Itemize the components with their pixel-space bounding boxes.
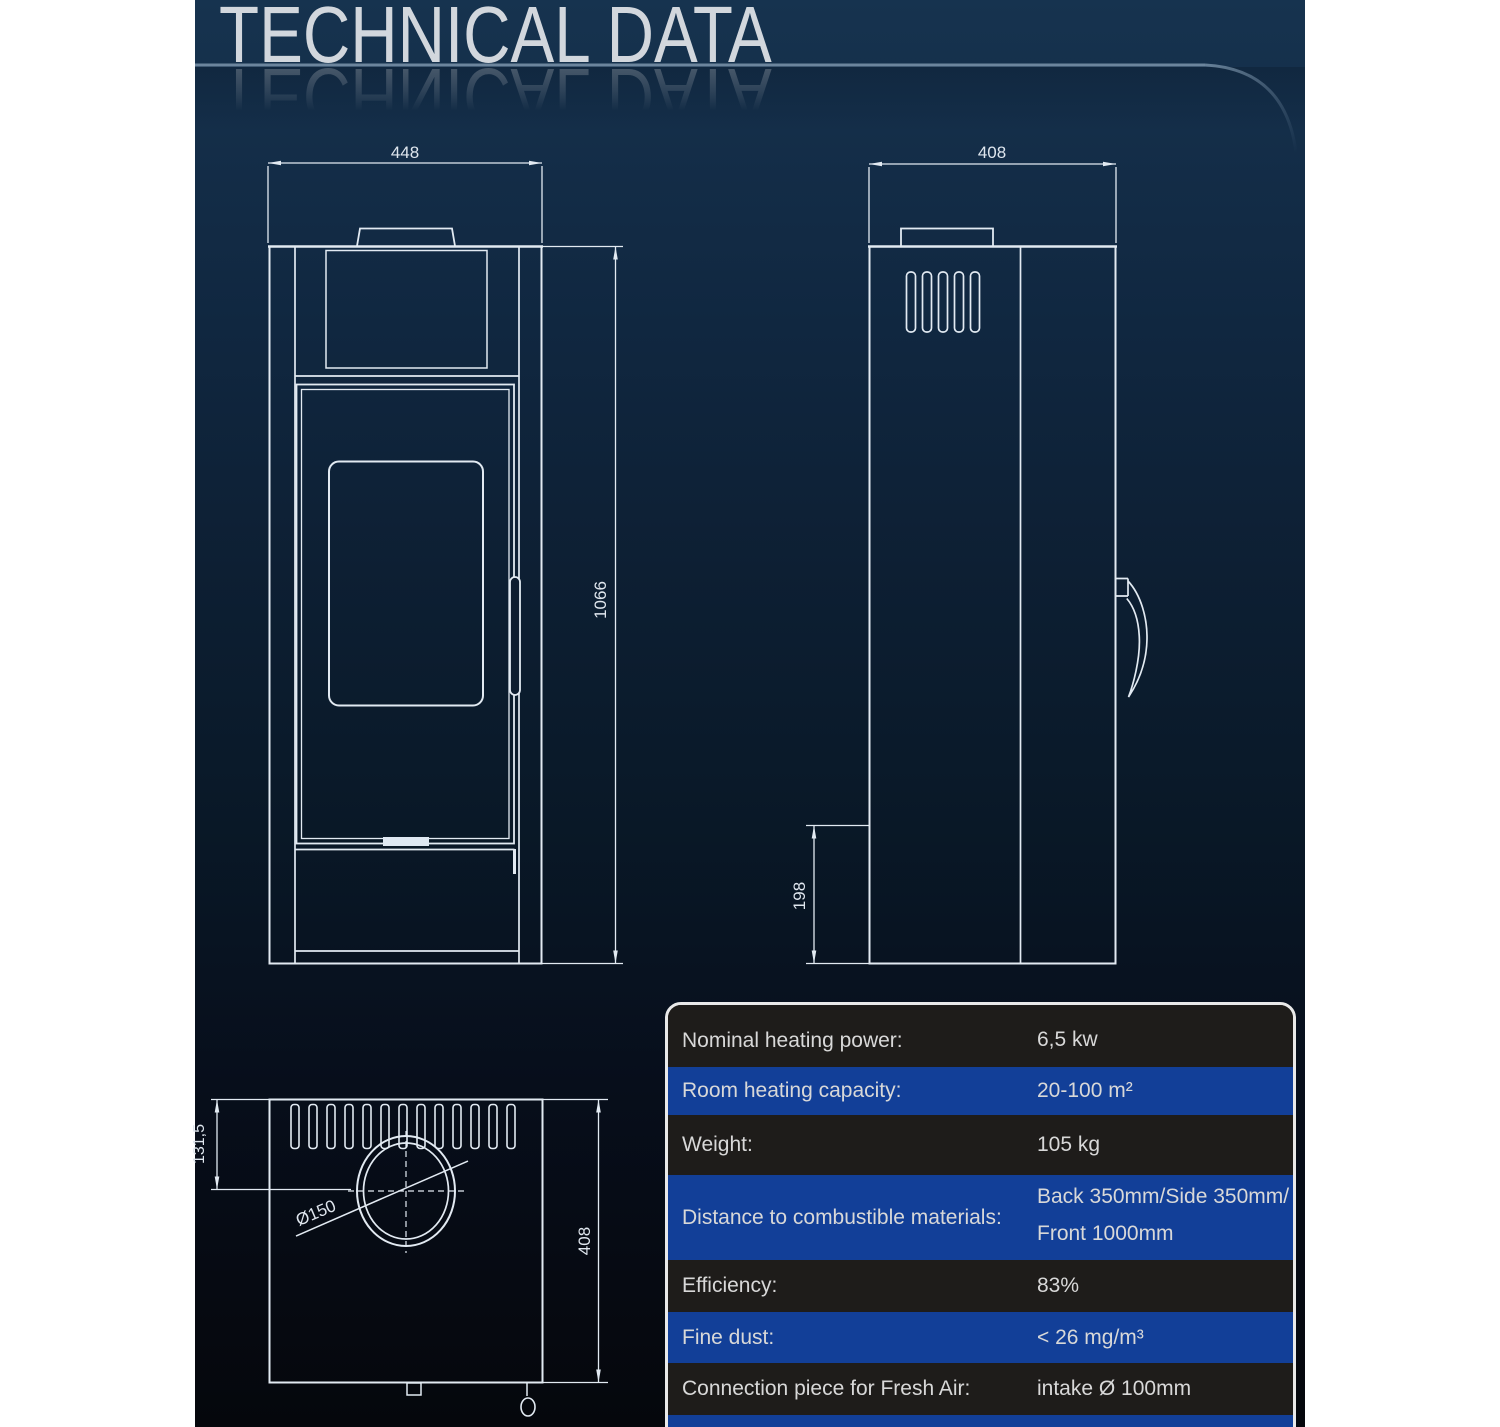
svg-text:448: 448 bbox=[391, 143, 419, 162]
svg-text:131,5: 131,5 bbox=[191, 1124, 208, 1164]
svg-text:1066: 1066 bbox=[591, 581, 610, 619]
svg-text:Ø150: Ø150 bbox=[293, 1196, 339, 1230]
svg-text:408: 408 bbox=[575, 1227, 594, 1255]
svg-text:198: 198 bbox=[790, 882, 809, 910]
svg-text:408: 408 bbox=[978, 143, 1006, 162]
